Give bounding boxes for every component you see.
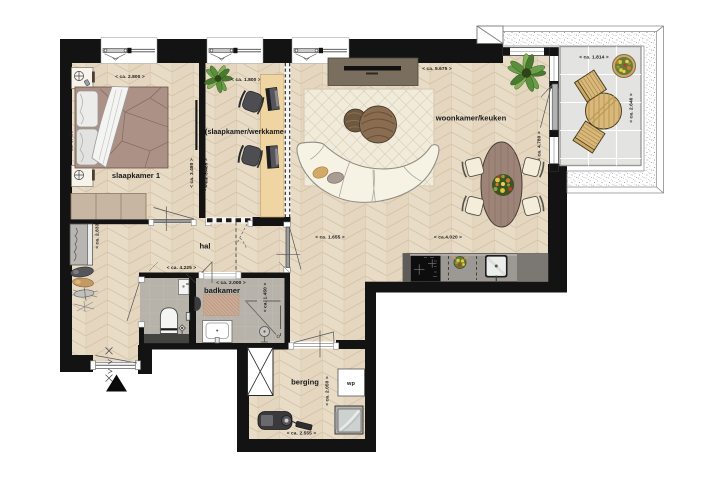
svg-text:< ca. 1.450 >: < ca. 1.450 > <box>263 283 269 313</box>
svg-text:slaapkamer 1: slaapkamer 1 <box>112 171 161 180</box>
svg-text:< ca. 2.000 >: < ca. 2.000 > <box>216 280 246 286</box>
svg-text:badkamer: badkamer <box>204 286 240 295</box>
svg-text:wp: wp <box>346 381 355 387</box>
svg-text:< ca. 4.225 >: < ca. 4.225 > <box>167 265 197 271</box>
svg-text:< ca. 1.814 >: < ca. 1.814 > <box>579 54 609 60</box>
svg-text:< ca. 2.050 >: < ca. 2.050 > <box>325 376 331 406</box>
svg-text:< ca. 4.780 >: < ca. 4.780 > <box>537 131 543 161</box>
svg-text:< ca. 5.675 >: < ca. 5.675 > <box>422 66 452 72</box>
svg-text:< ca. 2.555 >: < ca. 2.555 > <box>287 431 317 437</box>
svg-text:< ca. 1.800 >: < ca. 1.800 > <box>231 77 261 83</box>
svg-text:< ca. 1.655 >: < ca. 1.655 > <box>315 234 345 240</box>
svg-text:< ca. 2.833 >: < ca. 2.833 > <box>95 219 101 249</box>
svg-text:< ca. 3.490 >: < ca. 3.490 > <box>69 126 75 156</box>
svg-text:< ca. 2.646 >: < ca. 2.646 > <box>629 93 635 123</box>
svg-text:< ca. 2.800 >: < ca. 2.800 > <box>115 74 145 80</box>
svg-text:berging: berging <box>291 378 319 387</box>
svg-text:< ca.4.020 >: < ca.4.020 > <box>434 234 462 240</box>
svg-text:< ca. 3.480 >: < ca. 3.480 > <box>203 162 209 192</box>
svg-text:woonkamer/keuken: woonkamer/keuken <box>435 114 507 123</box>
svg-text:hal: hal <box>200 242 211 251</box>
svg-text:< ca. 3.480 >: < ca. 3.480 > <box>189 158 195 188</box>
svg-text:(slaapkamer/werkkamer): (slaapkamer/werkkamer) <box>205 127 290 136</box>
